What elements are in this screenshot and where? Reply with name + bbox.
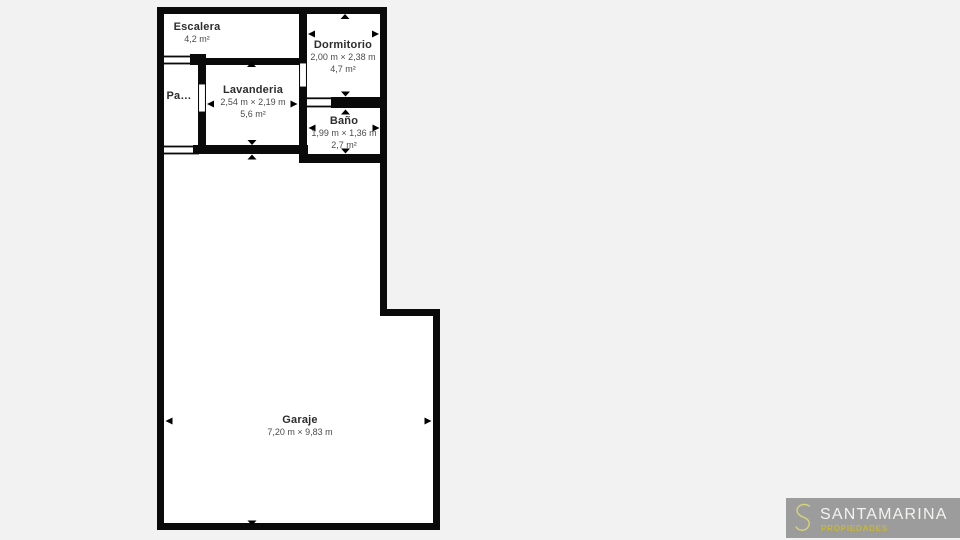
door-lavanderia-dormitorio [300,63,307,87]
door-dormitorio-bano [307,97,331,99]
wall-dormitorio-bano [331,97,380,108]
room-name: Lavanderia [220,84,285,97]
wall-bottom [157,523,440,530]
floor-plan-drawing [0,0,960,540]
logo-monogram-icon [792,502,816,534]
agency-logo: SANTAMARINA PROPIEDADES [786,498,960,538]
room-dimensions: 7,20 m × 9,83 m [267,427,332,439]
floor-plan-canvas: Escalera 4,2 m² Pa… Lavanderia 2,54 m × … [0,0,960,540]
room-area: 4,2 m² [174,34,221,46]
window-pasillo-garaje [164,153,199,155]
wall-escalera-corner [190,54,206,65]
room-area: 2,7 m² [311,140,376,152]
door-dormitorio-bano [307,106,331,108]
room-name: Pa… [166,90,191,103]
room-label-escalera: Escalera 4,2 m² [174,21,221,46]
room-name: Dormitorio [310,39,375,52]
wall-bano-bottom [299,154,387,163]
room-area: 5,6 m² [220,109,285,121]
room-dimensions: 2,54 m × 2,19 m [220,97,285,109]
window-pasillo-garaje [164,146,199,148]
room-label-bano: Baño 1,99 m × 1,36 m 2,7 m² [311,115,376,151]
room-name: Escalera [174,21,221,34]
window-escalera-pasillo [164,56,190,58]
wall-top [157,7,387,14]
wall-step [380,309,440,316]
wall-left [157,7,164,530]
room-dimensions: 2,00 m × 2,38 m [310,52,375,64]
agency-tagline: PROPIEDADES [821,525,888,533]
room-name: Garaje [267,414,332,427]
wall-lavanderia-bottom [193,145,308,154]
room-dimensions: 1,99 m × 1,36 m [311,128,376,140]
window-escalera-pasillo [164,63,190,65]
room-label-pasillo: Pa… [166,90,191,103]
door-lavanderia-left [199,84,206,112]
agency-name: SANTAMARINA [820,505,948,524]
room-label-lavanderia: Lavanderia 2,54 m × 2,19 m 5,6 m² [220,84,285,120]
room-label-garaje: Garaje 7,20 m × 9,83 m [267,414,332,439]
room-label-dormitorio: Dormitorio 2,00 m × 2,38 m 4,7 m² [310,39,375,75]
room-area: 4,7 m² [310,64,375,76]
wall-right-lower [433,309,440,530]
room-name: Baño [311,115,376,128]
